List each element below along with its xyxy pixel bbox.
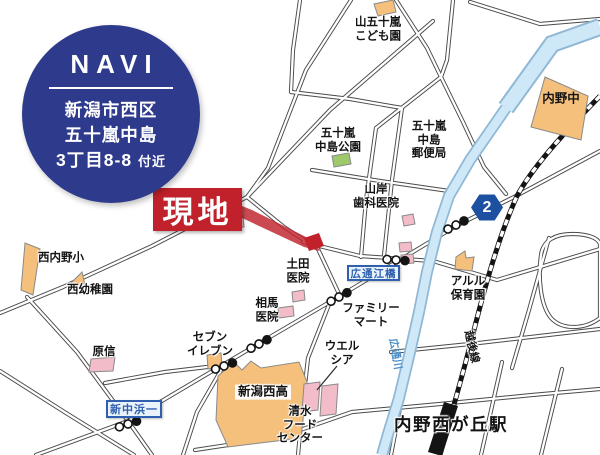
site-label-box: 現地 bbox=[153, 188, 242, 231]
park-shape bbox=[332, 153, 351, 167]
building-shimizu-food-1 bbox=[302, 382, 320, 412]
navi-address-line1: 新潟市西区 bbox=[22, 98, 200, 123]
building-near-arles-1 bbox=[399, 242, 412, 252]
building-arles-nursery bbox=[455, 251, 474, 271]
station-marker bbox=[428, 402, 458, 455]
building-nishi-high bbox=[216, 361, 307, 447]
site-pointer bbox=[240, 206, 324, 251]
navi-title: NAVI bbox=[22, 49, 200, 80]
building-nishi-kindergarten bbox=[69, 272, 85, 285]
route-number: 2 bbox=[483, 199, 492, 217]
site-label: 現地 bbox=[163, 187, 233, 232]
building-soma-clinic bbox=[278, 306, 294, 318]
navi-address-suffix: 付近 bbox=[138, 154, 166, 169]
navi-divider bbox=[49, 87, 173, 89]
building-nishiuchino-elem bbox=[21, 243, 40, 295]
intersection-sign-label: 新中浜一 bbox=[110, 401, 158, 417]
intersection-sign-shinnakahama: 新中浜一 bbox=[106, 400, 162, 418]
navi-address-line3: 3丁目8-8 付近 bbox=[22, 148, 200, 173]
navi-address-line2: 五十嵐中島 bbox=[22, 123, 200, 148]
building-harashin bbox=[89, 357, 115, 372]
navi-address-block: 3丁目8-8 bbox=[56, 150, 132, 170]
building-tsuchida-clinic bbox=[292, 290, 305, 302]
bridge-sign-hirodorie: 広通江橋 bbox=[347, 265, 400, 281]
traffic-signal-icon bbox=[383, 255, 409, 265]
guide-map: 山五十嵐 こども園 内野中 五十嵐 中島公園 五十嵐 中島 郵便局 山岸 歯科医… bbox=[0, 0, 600, 455]
bridge-sign-label: 広通江橋 bbox=[351, 266, 397, 281]
building-shimizu-food-2 bbox=[320, 384, 338, 416]
building-yamagishi bbox=[402, 214, 415, 226]
building-kodomoen bbox=[374, 0, 396, 16]
navi-badge: NAVI 新潟市西区 五十嵐中島 3丁目8-8 付近 bbox=[22, 25, 200, 203]
traffic-signal-icon bbox=[246, 334, 273, 353]
building-uchino-jhs bbox=[531, 77, 588, 140]
